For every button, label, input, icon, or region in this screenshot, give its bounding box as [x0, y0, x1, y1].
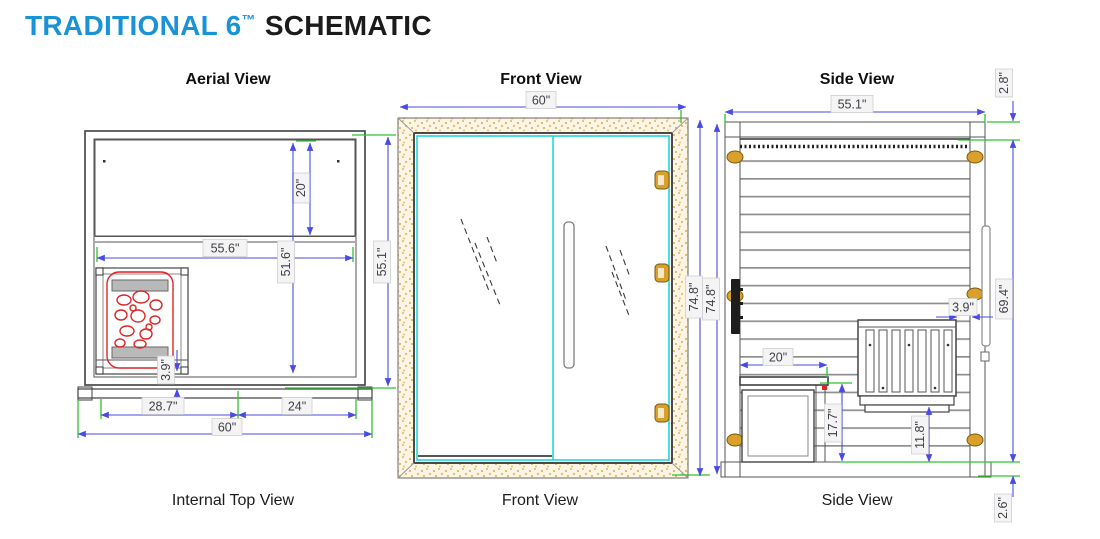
dim-side-interior-height: 69.4" [996, 279, 1013, 319]
side-view-label: Side View [820, 71, 895, 88]
front-view-drawing: 60" 74.8" 74.8" [398, 92, 720, 479]
door-handle [564, 222, 574, 368]
svg-text:3.9": 3.9" [952, 301, 974, 315]
aerial-view-caption: Internal Top View [172, 492, 295, 509]
aerial-view-drawing: 55.6" 20" 51.6" 55.1" [78, 131, 396, 438]
svg-text:60": 60" [218, 421, 236, 435]
dim-side-depth: 55.1" [725, 96, 985, 124]
aerial-floor-strip [78, 387, 372, 400]
svg-text:51.6": 51.6" [279, 248, 293, 277]
svg-text:20": 20" [769, 351, 787, 365]
svg-text:28.7": 28.7" [149, 400, 178, 414]
svg-text:17.7": 17.7" [826, 409, 840, 438]
dim-aerial-right-span: 24" [238, 398, 356, 420]
dim-aerial-interior-width: 55.6" [97, 240, 353, 263]
front-door-handle-edge [981, 226, 990, 361]
dim-side-roof: 2.8" [996, 69, 1013, 97]
aerial-heater [107, 272, 173, 368]
side-roof-frame [725, 122, 985, 137]
svg-text:55.6": 55.6" [211, 242, 240, 256]
svg-text:2.8": 2.8" [997, 72, 1011, 94]
svg-text:11.8": 11.8" [913, 421, 927, 449]
svg-text:74.8": 74.8" [687, 283, 701, 312]
front-view-label: Front View [500, 71, 582, 88]
heater-stones [115, 291, 162, 348]
svg-text:3.9": 3.9" [159, 359, 173, 381]
svg-text:55.1": 55.1" [375, 248, 389, 277]
svg-text:74.8": 74.8" [704, 285, 718, 314]
front-view-caption: Front View [502, 492, 579, 509]
aerial-view-label: Aerial View [185, 71, 271, 88]
side-view-drawing: 55.1" 20" 17.7" 3.9" 11.8" [721, 69, 1020, 522]
svg-text:24": 24" [288, 400, 306, 414]
dim-aerial-bench-depth: 20" [293, 141, 317, 235]
dim-side-floor: 2.6" [995, 494, 1012, 522]
svg-text:55.1": 55.1" [838, 98, 867, 112]
side-floor [721, 462, 991, 477]
aerial-bench-slats [95, 140, 355, 236]
dim-aerial-interior-depth: 51.6" [278, 143, 295, 373]
svg-text:20": 20" [294, 179, 308, 197]
schematic-canvas: Aerial View Front View Side View [0, 0, 1100, 539]
svg-text:2.6": 2.6" [996, 497, 1010, 519]
side-view-caption: Side View [822, 492, 893, 509]
svg-text:69.4": 69.4" [997, 285, 1011, 314]
dim-front-height-2: 74.8" [703, 124, 720, 474]
heater-top-band [112, 280, 168, 291]
front-opening [414, 133, 672, 463]
dim-aerial-overall-width: 60" [78, 400, 372, 438]
svg-text:60": 60" [532, 94, 550, 108]
side-heater-guard [858, 320, 956, 412]
dim-aerial-left-span: 28.7" [101, 391, 238, 419]
